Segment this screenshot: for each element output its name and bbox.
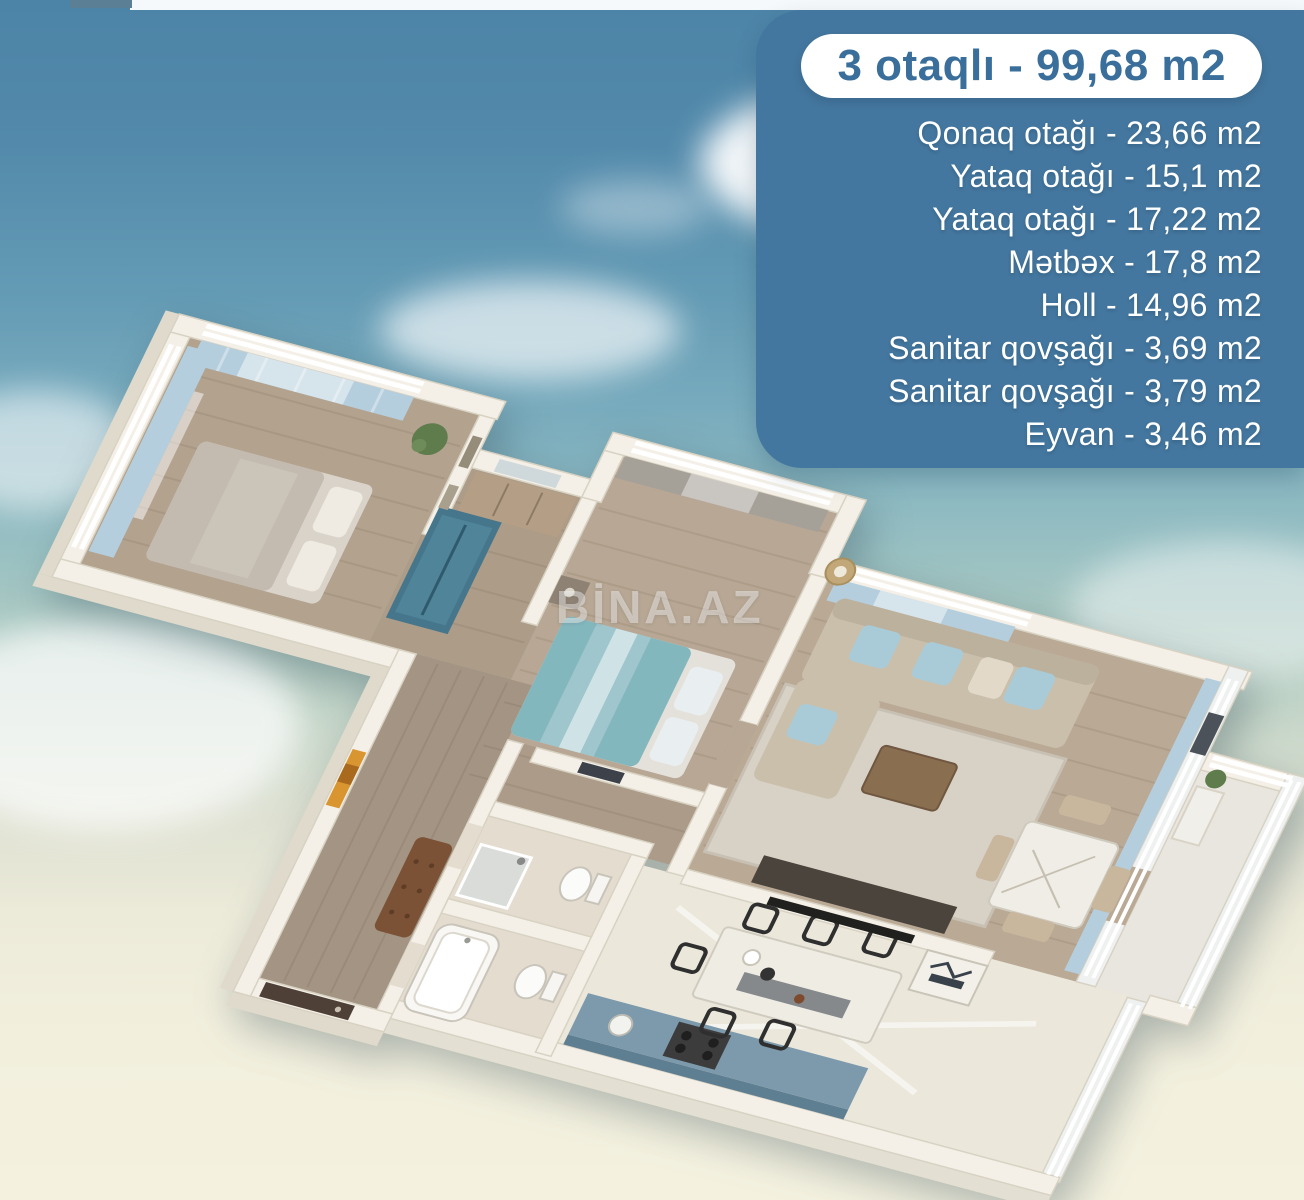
screenshot-root: BİNA.AZ 3 otaqlı - 99,68 m2 Qonaq otağı … — [0, 0, 1304, 1200]
info-panel: 3 otaqlı - 99,68 m2 Qonaq otağı - 23,66 … — [756, 10, 1304, 468]
room-area-row: Yataq otağı - 15,1 m2 — [950, 155, 1262, 198]
plan-title: 3 otaqlı - 99,68 m2 — [837, 41, 1226, 90]
room-area-row: Qonaq otağı - 23,66 m2 — [917, 112, 1262, 155]
room-area-row: Eyvan - 3,46 m2 — [1025, 413, 1263, 456]
room-area-row: Holl - 14,96 m2 — [1041, 284, 1262, 327]
room-area-row: Sanitar qovşağı - 3,79 m2 — [888, 370, 1262, 413]
room-area-row: Sanitar qovşağı - 3,69 m2 — [888, 327, 1262, 370]
plan-title-badge: 3 otaqlı - 99,68 m2 — [801, 34, 1262, 98]
room-area-row: Mətbəx - 17,8 m2 — [1008, 241, 1262, 284]
room-area-row: Yataq otağı - 17,22 m2 — [932, 198, 1262, 241]
watermark: BİNA.AZ — [556, 580, 764, 634]
